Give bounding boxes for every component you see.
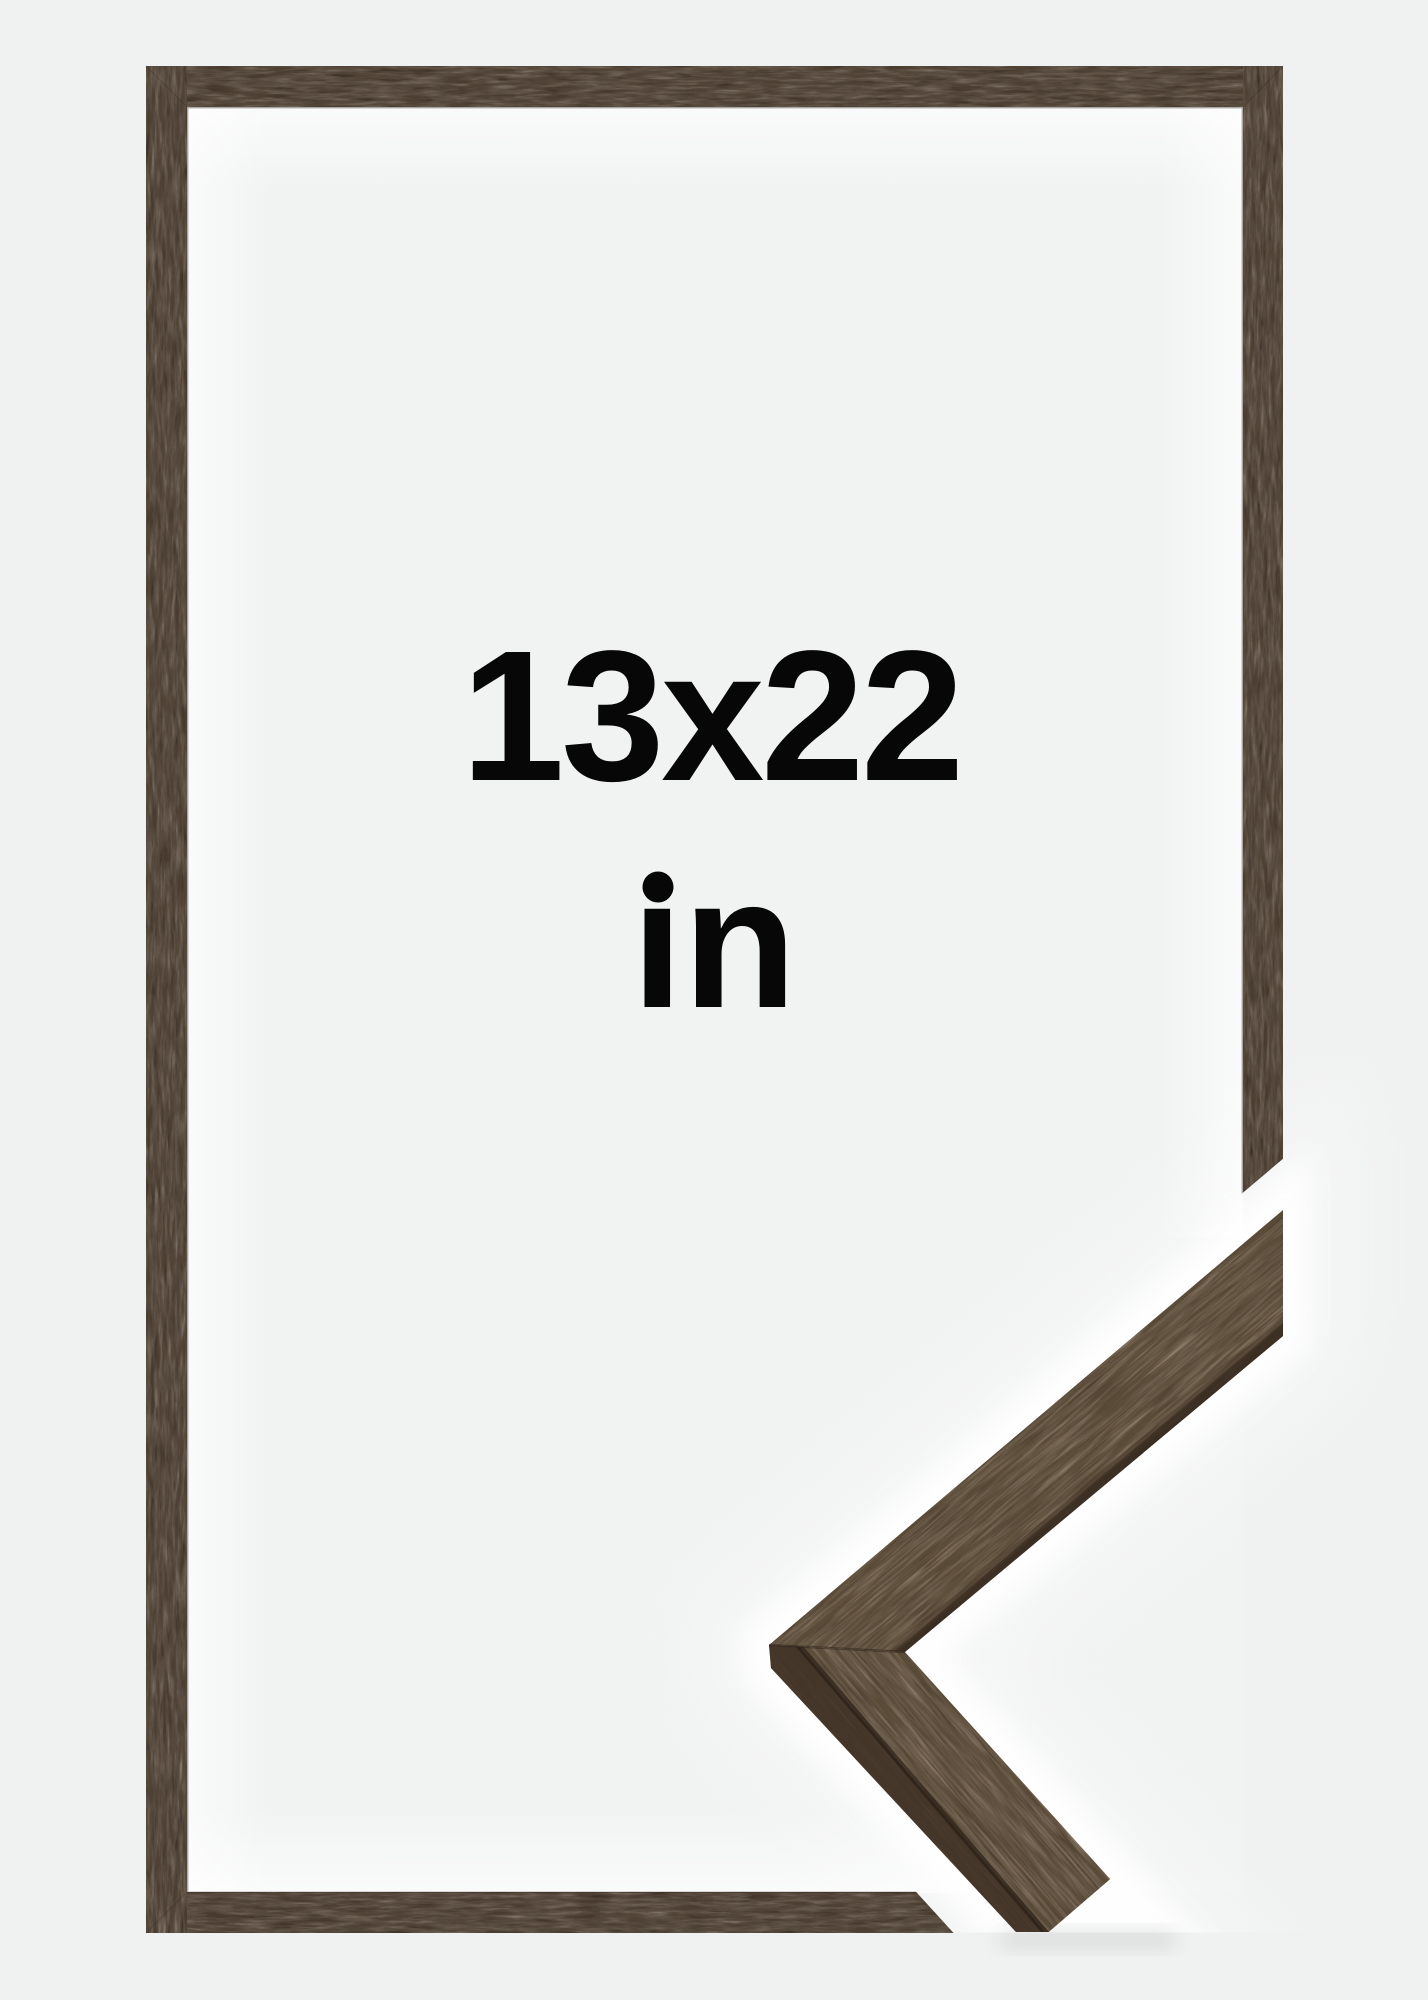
svg-text:13x22: 13x22 bbox=[461, 613, 961, 820]
svg-text:ın: ın bbox=[631, 840, 796, 1047]
